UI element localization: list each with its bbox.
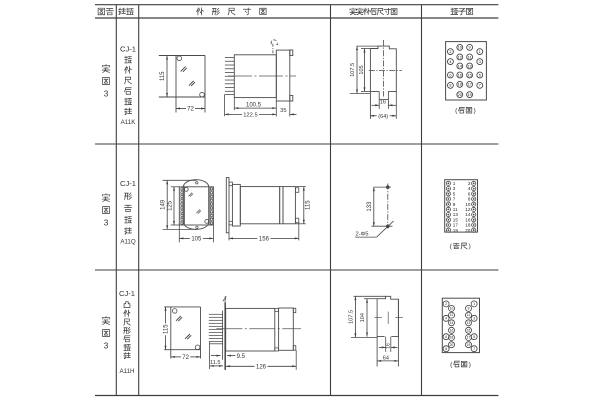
svg-text:105: 105 xyxy=(191,237,202,243)
svg-text:17: 17 xyxy=(467,83,471,87)
svg-text:(: ( xyxy=(455,108,458,115)
svg-text:133: 133 xyxy=(367,201,373,212)
svg-text:5: 5 xyxy=(479,73,481,77)
svg-text:13: 13 xyxy=(467,64,471,68)
svg-text:2: 2 xyxy=(445,302,447,306)
svg-text:2: 2 xyxy=(449,50,451,54)
svg-text:7: 7 xyxy=(479,84,481,88)
svg-text:72: 72 xyxy=(182,355,189,361)
svg-text:A11H: A11H xyxy=(119,368,134,375)
svg-text:1: 1 xyxy=(473,302,475,306)
svg-text:19: 19 xyxy=(453,228,459,233)
svg-text:20: 20 xyxy=(465,228,471,233)
svg-text:12: 12 xyxy=(458,55,462,59)
svg-text:6: 6 xyxy=(445,335,447,339)
svg-text:107.5: 107.5 xyxy=(350,63,356,77)
svg-text:A11Q: A11Q xyxy=(120,239,136,246)
svg-text:16: 16 xyxy=(386,343,392,349)
svg-text:18: 18 xyxy=(458,83,462,87)
svg-text:12: 12 xyxy=(450,313,454,317)
svg-text:11.5: 11.5 xyxy=(210,360,220,366)
svg-text:): ) xyxy=(473,108,475,115)
svg-text:20: 20 xyxy=(458,93,462,97)
svg-text:2-Φ5: 2-Φ5 xyxy=(355,231,368,237)
svg-text:6: 6 xyxy=(449,73,451,77)
svg-text:): ) xyxy=(468,243,470,250)
svg-text:4: 4 xyxy=(449,60,451,64)
svg-text:10: 10 xyxy=(458,46,462,50)
svg-text:11: 11 xyxy=(468,55,472,59)
svg-text:3: 3 xyxy=(479,60,481,64)
svg-text:16: 16 xyxy=(458,73,462,77)
svg-text:3: 3 xyxy=(104,90,109,99)
svg-text:72: 72 xyxy=(187,107,194,113)
svg-text:35: 35 xyxy=(280,108,286,114)
svg-text:(: ( xyxy=(450,361,453,368)
svg-text:13: 13 xyxy=(467,321,471,325)
svg-text:122.5: 122.5 xyxy=(243,113,258,119)
svg-text:104: 104 xyxy=(360,313,366,322)
svg-text:149: 149 xyxy=(160,199,166,210)
svg-text:14: 14 xyxy=(458,64,462,68)
svg-text:10: 10 xyxy=(450,307,454,311)
svg-text:3: 3 xyxy=(104,342,109,351)
svg-text:9: 9 xyxy=(468,307,470,311)
svg-text:16: 16 xyxy=(450,328,454,332)
svg-text:19: 19 xyxy=(467,343,471,347)
svg-text:CJ-1: CJ-1 xyxy=(119,289,135,298)
svg-text:156: 156 xyxy=(259,237,270,243)
svg-text:8: 8 xyxy=(445,347,447,351)
svg-text:15: 15 xyxy=(467,328,471,332)
svg-text:): ) xyxy=(469,361,471,368)
svg-text:16: 16 xyxy=(380,100,386,106)
svg-text:115: 115 xyxy=(160,71,166,81)
svg-text:9: 9 xyxy=(469,46,471,50)
svg-text:107.5: 107.5 xyxy=(349,310,355,324)
svg-text:17: 17 xyxy=(467,336,471,340)
svg-text:115: 115 xyxy=(306,200,312,210)
svg-text:A11K: A11K xyxy=(121,119,137,126)
svg-text:CJ-1: CJ-1 xyxy=(120,44,136,53)
svg-text:3: 3 xyxy=(473,316,475,320)
svg-text:15: 15 xyxy=(467,73,471,77)
svg-text:14: 14 xyxy=(450,321,454,325)
svg-text:11: 11 xyxy=(467,313,471,317)
svg-text:19: 19 xyxy=(467,93,471,97)
svg-text:8: 8 xyxy=(449,84,451,88)
svg-text:115: 115 xyxy=(164,324,170,334)
svg-text:7: 7 xyxy=(473,347,475,351)
svg-text:1: 1 xyxy=(479,50,481,54)
svg-text:125: 125 xyxy=(167,200,173,211)
svg-text:(: ( xyxy=(450,243,453,250)
svg-text:(64): (64) xyxy=(378,114,388,120)
svg-text:3: 3 xyxy=(104,219,109,228)
svg-text:9.5: 9.5 xyxy=(237,354,246,360)
svg-text:18: 18 xyxy=(450,336,454,340)
svg-text:105: 105 xyxy=(359,65,365,74)
svg-text:20: 20 xyxy=(450,343,454,347)
svg-text:CJ-1: CJ-1 xyxy=(120,179,136,188)
svg-text:126: 126 xyxy=(256,364,267,370)
svg-text:64: 64 xyxy=(383,355,389,361)
svg-text:4: 4 xyxy=(445,316,447,320)
svg-text:5: 5 xyxy=(473,335,475,339)
